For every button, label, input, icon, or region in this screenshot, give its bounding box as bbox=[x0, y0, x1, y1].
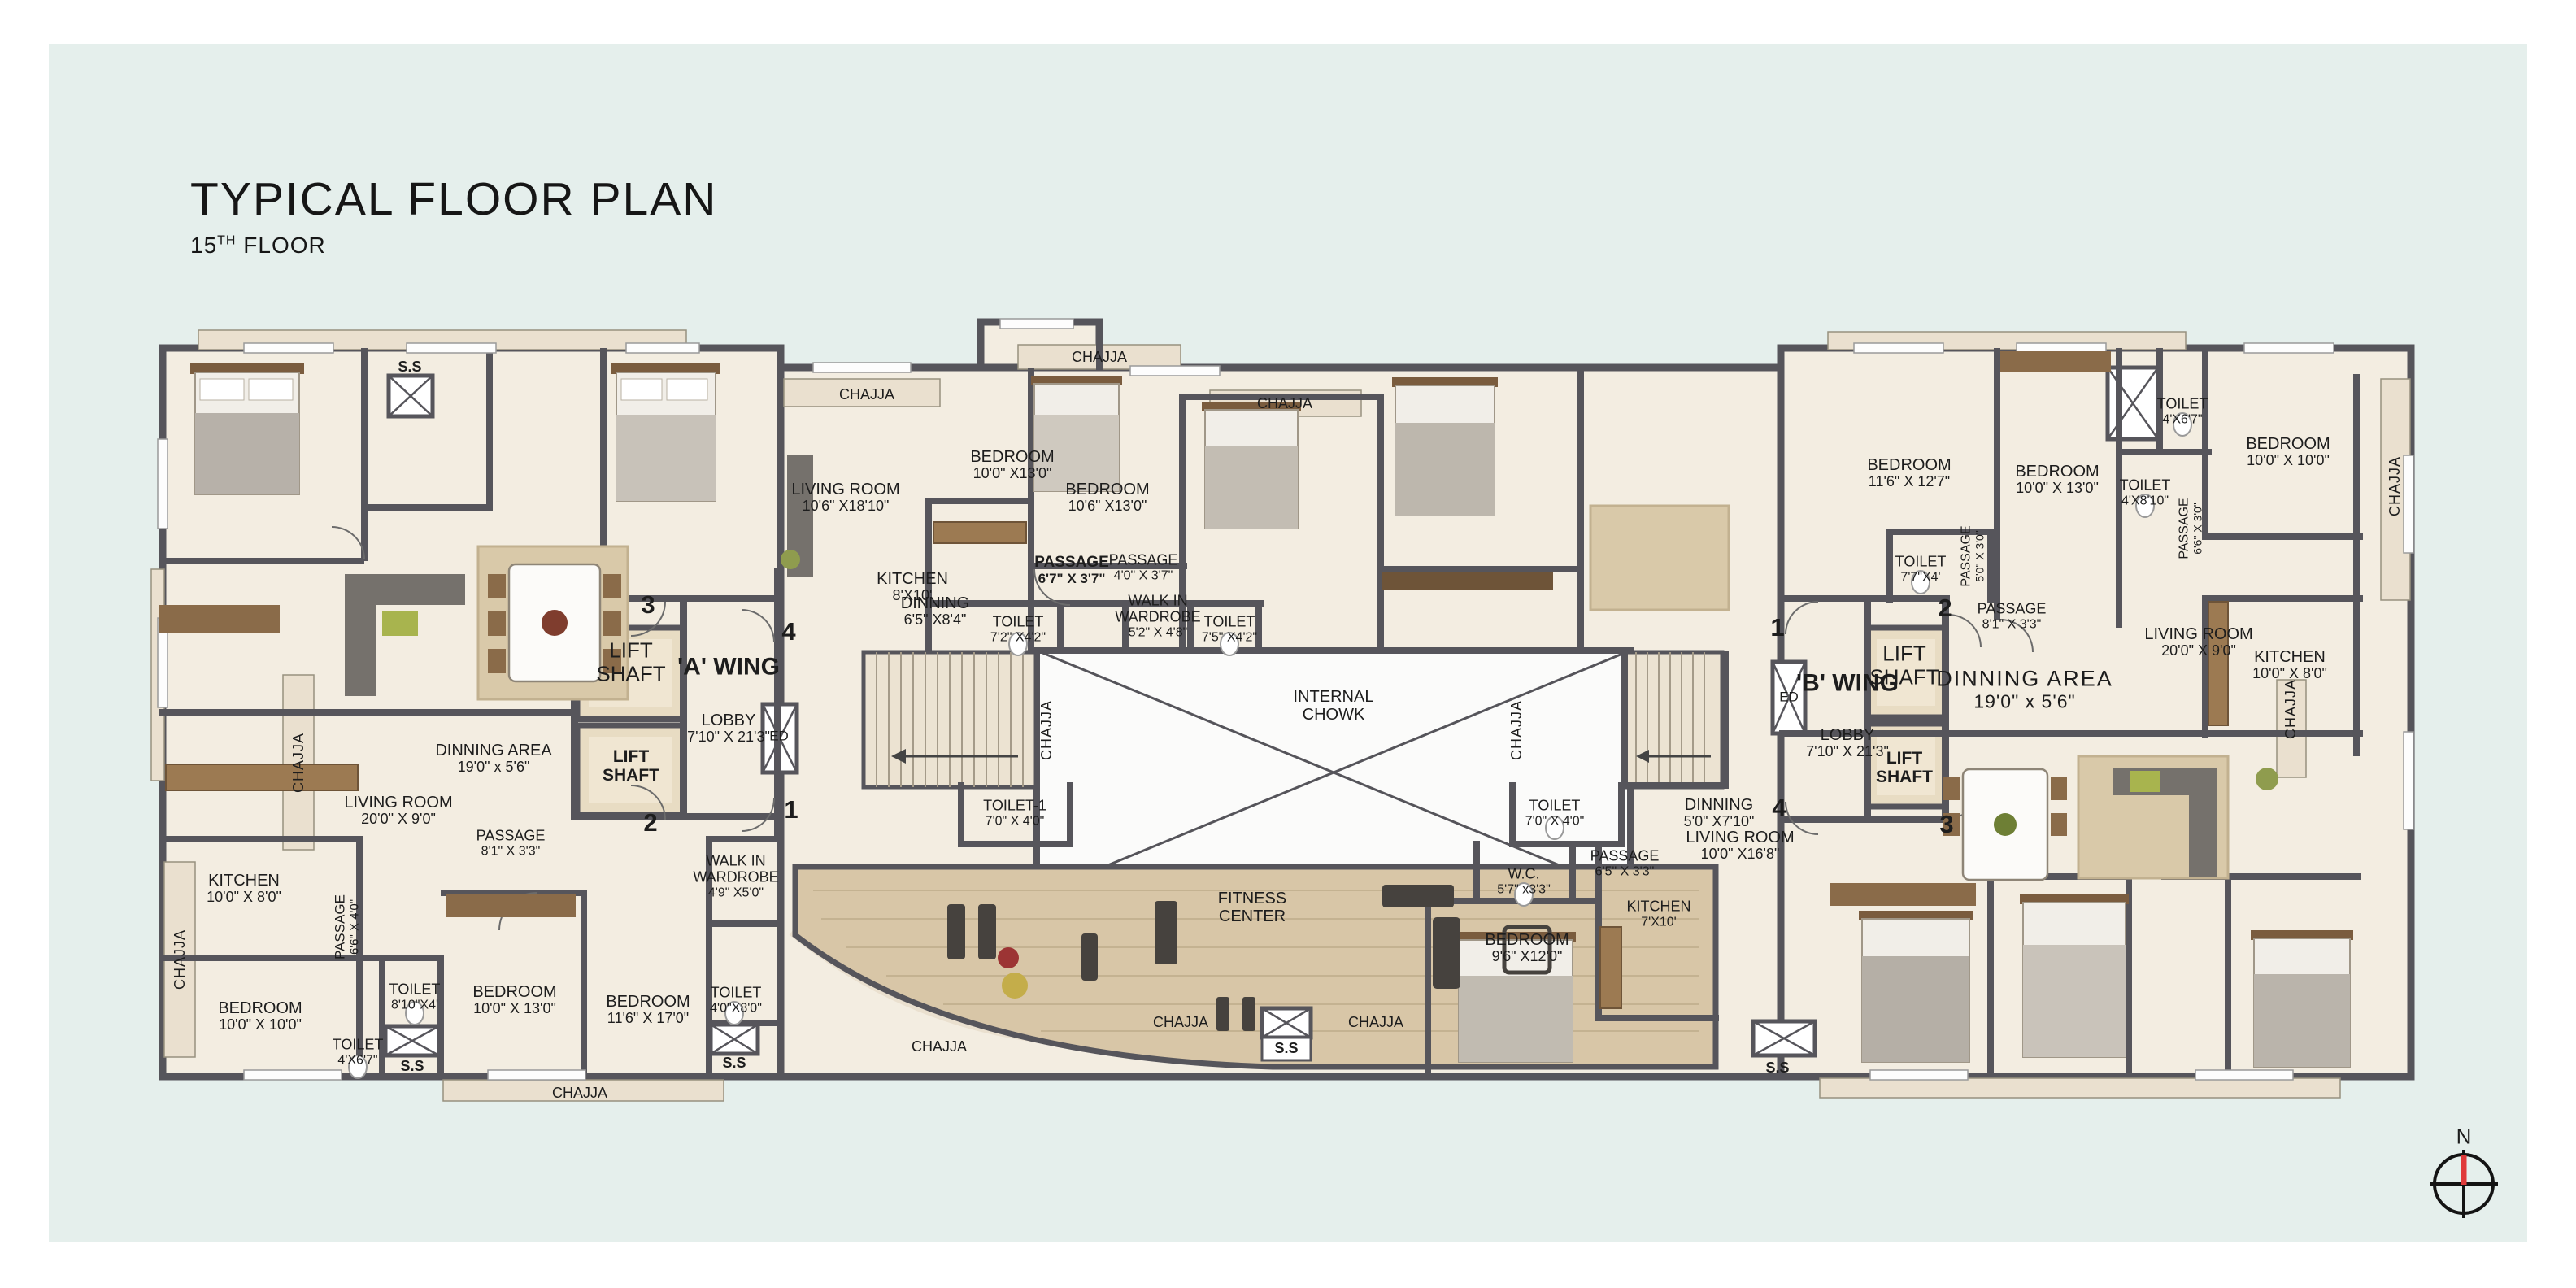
label-text: LIVING ROOM bbox=[791, 481, 899, 498]
label-text: TOILET bbox=[1202, 614, 1257, 630]
label-text: PASSAGE bbox=[2178, 498, 2192, 559]
plan-label-n: N bbox=[2456, 1125, 2472, 1149]
label-dims: 5'2" X 4'8" bbox=[1108, 625, 1207, 640]
label-text: CHAJJA bbox=[1509, 700, 1525, 760]
label-text: LIFT SHAFT bbox=[1872, 749, 1937, 786]
plan-label-chajja: CHAJJA bbox=[552, 1086, 607, 1102]
plan-label-s-s: S.S bbox=[398, 359, 421, 376]
plan-label-chajja: CHAJJA bbox=[1348, 1015, 1403, 1031]
plan-label-dinning: DINNING5'0" X7'10" bbox=[1684, 796, 1755, 830]
plan-label-toilet: TOILET7'7"X4' bbox=[1895, 554, 1947, 584]
label-dims: 6'6" X 4'0" bbox=[348, 894, 362, 959]
label-text: ED bbox=[769, 729, 789, 745]
label-text: 1 bbox=[784, 796, 798, 824]
label-text: WALK IN WARDROBE bbox=[682, 853, 790, 885]
label-text: TOILET-1 bbox=[983, 798, 1046, 814]
label-text: CHAJJA bbox=[2283, 679, 2300, 739]
plan-label-kitchen: KITCHEN10'0" X 8'0" bbox=[207, 872, 281, 906]
plan-label-chajja: CHAJJA bbox=[172, 929, 189, 990]
label-dims: 10'0" X 10'0" bbox=[218, 1017, 302, 1033]
label-text: CHAJJA bbox=[291, 733, 307, 793]
label-text: BEDROOM bbox=[472, 983, 556, 1001]
label-dims: 4'X6'7" bbox=[2157, 412, 2208, 427]
plan-label-ed: ED bbox=[769, 729, 789, 745]
label-dims: 4'0"X8'0" bbox=[710, 1001, 762, 1016]
plan-label-toilet-1: TOILET-17'0" X 4'0" bbox=[983, 798, 1046, 828]
label-text: TOILET bbox=[389, 981, 441, 998]
plan-label-living-room: LIVING ROOM20'0" X 9'0" bbox=[344, 794, 452, 828]
plan-label-internal-chowk: INTERNAL CHOWK bbox=[1273, 688, 1395, 724]
label-text: N bbox=[2456, 1125, 2472, 1149]
plan-label-4: 4 bbox=[781, 618, 795, 646]
label-dims: 10'0" X 13'0" bbox=[472, 1001, 556, 1017]
label-text: BEDROOM bbox=[218, 999, 302, 1017]
label-text: CHAJJA bbox=[1072, 350, 1127, 366]
plan-label-passage: PASSAGE6'5" X 3'3" bbox=[1590, 848, 1660, 878]
plan-label-toilet: TOILET7'0" X 4'0" bbox=[1525, 798, 1585, 828]
label-text: LIFT SHAFT bbox=[598, 747, 664, 785]
plan-label-toilet: TOILET8'10"X4' bbox=[389, 981, 441, 1012]
label-text: 3 bbox=[1939, 811, 1953, 838]
plan-label-living-room: LIVING ROOM20'0" X 9'0" bbox=[2144, 625, 2252, 659]
label-text: W.C. bbox=[1497, 866, 1551, 882]
label-text: LOBBY bbox=[1806, 726, 1889, 744]
plan-label-chajja: CHAJJA bbox=[1509, 700, 1525, 760]
plan-label-bedroom: BEDROOM10'0" X 10'0" bbox=[218, 999, 302, 1033]
plan-label-chajja: CHAJJA bbox=[839, 387, 894, 403]
label-text: CHAJJA bbox=[172, 929, 189, 990]
plan-label-chajja: CHAJJA bbox=[1257, 396, 1312, 412]
label-dims: 20'0" X 9'0" bbox=[344, 812, 452, 828]
plan-label-chajja: CHAJJA bbox=[1039, 700, 1055, 760]
plan-label-w-c: W.C.5'7" x3'3" bbox=[1497, 866, 1551, 896]
label-text: CHAJJA bbox=[552, 1086, 607, 1102]
plan-label-lift-shaft: LIFT SHAFT bbox=[598, 747, 664, 785]
label-text: DINNING AREA bbox=[1936, 668, 2113, 692]
label-dims: 11'6" X 12'7" bbox=[1867, 474, 1951, 490]
plan-label-passage: PASSAGE5'0" X 3'0" bbox=[1960, 525, 1986, 586]
label-dims: 11'6" X 17'0" bbox=[606, 1011, 690, 1027]
label-text: LIVING ROOM bbox=[2144, 625, 2252, 643]
plan-label-chajja: CHAJJA bbox=[1072, 350, 1127, 366]
plan-label-2: 2 bbox=[643, 809, 657, 837]
label-text: 3 bbox=[641, 591, 655, 619]
label-text: BEDROOM bbox=[606, 993, 690, 1011]
label-text: LIFT SHAFT bbox=[594, 638, 668, 685]
label-text: LOBBY bbox=[687, 711, 770, 729]
label-dims: 10'0" X16'8" bbox=[1686, 846, 1794, 863]
label-text: LIVING ROOM bbox=[1686, 829, 1794, 846]
label-text: PASSAGE bbox=[333, 894, 348, 959]
label-dims: 8'1" X 3'3" bbox=[476, 844, 546, 859]
label-dims: 6'5" X 3'3" bbox=[1590, 864, 1660, 879]
label-dims: 5'0" X7'10" bbox=[1684, 814, 1755, 830]
label-text: CHAJJA bbox=[1348, 1015, 1403, 1031]
plan-label-bedroom: BEDROOM10'6" X13'0" bbox=[1065, 481, 1149, 515]
label-text: S.S bbox=[722, 1055, 746, 1072]
plan-label-walk-in-wardrobe: WALK IN WARDROBE5'2" X 4'8" bbox=[1108, 593, 1207, 639]
label-text: S.S bbox=[398, 359, 421, 376]
label-dims: 19'0" x 5'6" bbox=[435, 759, 551, 776]
label-text: DINNING AREA bbox=[435, 742, 551, 759]
plan-label-bedroom: BEDROOM11'6" X 17'0" bbox=[606, 993, 690, 1027]
plan-label-s-s: S.S bbox=[1765, 1060, 1789, 1077]
plan-label-toilet: TOILET7'2" X4'2" bbox=[990, 614, 1046, 644]
label-text: S.S bbox=[1274, 1041, 1298, 1057]
label-text: WALK IN WARDROBE bbox=[1108, 593, 1207, 625]
label-text: BEDROOM bbox=[2015, 463, 2099, 481]
label-text: PASSAGE bbox=[1109, 552, 1178, 568]
plan-label-lift-shaft: LIFT SHAFT bbox=[594, 638, 668, 685]
plan-label-bedroom: BEDROOM10'0" X 13'0" bbox=[472, 983, 556, 1017]
label-text: PASSAGE bbox=[1590, 848, 1660, 864]
label-dims: 10'0" X 8'0" bbox=[207, 890, 281, 906]
label-text: 4 bbox=[1772, 794, 1786, 822]
label-text: INTERNAL CHOWK bbox=[1273, 688, 1395, 724]
label-text: CHAJJA bbox=[1153, 1015, 1208, 1031]
label-text: LIVING ROOM bbox=[344, 794, 452, 812]
label-text: BEDROOM bbox=[1867, 456, 1951, 474]
label-text: 2 bbox=[1938, 594, 1952, 622]
label-text: LIFT SHAFT bbox=[1867, 642, 1942, 688]
plan-label-dinning-area: DINNING AREA19'0" x 5'6" bbox=[1936, 668, 2113, 712]
label-dims: 5'0" X 3'0" bbox=[1973, 525, 1986, 586]
plan-label-chajja: CHAJJA bbox=[291, 733, 307, 793]
plan-label-lift-shaft: LIFT SHAFT bbox=[1872, 749, 1937, 786]
label-text: BEDROOM bbox=[2246, 435, 2330, 453]
floor-plan-page: TYPICAL FLOOR PLAN 15TH FLOOR S.SLIFT SH… bbox=[0, 0, 2576, 1288]
label-dims: 7'7"X4' bbox=[1895, 570, 1947, 585]
label-text: BEDROOM bbox=[1065, 481, 1149, 498]
label-text: TOILET bbox=[1895, 554, 1947, 570]
plan-label-fitness-center: FITNESS CENTER bbox=[1203, 890, 1301, 925]
plan-label-s-s: S.S bbox=[722, 1055, 746, 1072]
label-dims: 9'6" X12'0" bbox=[1485, 949, 1569, 965]
label-dims: 7'X10' bbox=[1626, 915, 1690, 929]
label-dims: 7'5" X4'2" bbox=[1202, 630, 1257, 645]
label-dims: 7'0" X 4'0" bbox=[1525, 814, 1585, 829]
plan-label-toilet: TOILET4'0"X8'0" bbox=[710, 985, 762, 1015]
label-dims: 4'0" X 3'7" bbox=[1109, 568, 1178, 583]
plan-label-2: 2 bbox=[1938, 594, 1952, 622]
label-dims: 6'6" X 3'0" bbox=[2191, 498, 2204, 559]
label-dims: 8'1" X 3'3" bbox=[1978, 617, 2047, 632]
plan-label-3: 3 bbox=[1939, 811, 1953, 838]
plan-label-toilet: TOILET4'X8'10" bbox=[2120, 477, 2171, 507]
label-text: CHAJJA bbox=[1039, 700, 1055, 760]
label-text: CHAJJA bbox=[2387, 456, 2404, 516]
plan-label-chajja: CHAJJA bbox=[912, 1039, 967, 1055]
plan-label-living-room: LIVING ROOM10'6" X18'10" bbox=[791, 481, 899, 515]
label-text: 2 bbox=[643, 809, 657, 837]
label-dims: 20'0" X 9'0" bbox=[2144, 643, 2252, 659]
label-text: 1 bbox=[1770, 614, 1784, 642]
label-text: TOILET bbox=[710, 985, 762, 1001]
label-dims: 4'X8'10" bbox=[2120, 494, 2171, 508]
label-dims: 7'10" X 21'3" bbox=[687, 729, 770, 746]
plan-label-toilet: TOILET4'X6'7" bbox=[2157, 396, 2208, 426]
plan-label-kitchen: KITCHEN7'X10' bbox=[1626, 899, 1690, 929]
plan-label-passage: PASSAGE8'1" X 3'3" bbox=[476, 828, 546, 858]
label-text: KITCHEN bbox=[877, 570, 948, 588]
label-text: BEDROOM bbox=[970, 448, 1054, 466]
label-text: PASSAGE bbox=[476, 828, 546, 844]
label-dims: 5'7" x3'3" bbox=[1497, 882, 1551, 897]
label-text: PASSAGE bbox=[1960, 525, 1974, 586]
label-text: CHAJJA bbox=[1257, 396, 1312, 412]
plan-label-dinning-area: DINNING AREA19'0" x 5'6" bbox=[435, 742, 551, 776]
plan-label-chajja: CHAJJA bbox=[2283, 679, 2300, 739]
label-dims: 4'9" X5'0" bbox=[682, 885, 790, 900]
plan-label-4: 4 bbox=[1772, 794, 1786, 822]
plan-label-chajja: CHAJJA bbox=[1153, 1015, 1208, 1031]
label-text: S.S bbox=[1765, 1060, 1789, 1077]
plan-label-toilet: TOILET7'5" X4'2" bbox=[1202, 614, 1257, 644]
plan-label-passage: PASSAGE6'7" X 3'7" bbox=[1034, 555, 1109, 587]
plan-label-passage: PASSAGE4'0" X 3'7" bbox=[1109, 552, 1178, 582]
label-text: TOILET bbox=[2120, 477, 2171, 494]
label-text: DINNING bbox=[901, 594, 969, 612]
label-text: 4 bbox=[781, 618, 795, 646]
plan-label-bedroom: BEDROOM10'0" X 10'0" bbox=[2246, 435, 2330, 469]
plan-label-kitchen: KITCHEN10'0" X 8'0" bbox=[2252, 648, 2327, 682]
plan-label-s-s: S.S bbox=[400, 1059, 424, 1075]
label-dims: 10'0" X13'0" bbox=[970, 466, 1054, 482]
plan-label-toilet: TOILET4'X6'7" bbox=[333, 1037, 384, 1067]
label-text: DINNING bbox=[1684, 796, 1755, 814]
label-dims: 7'0" X 4'0" bbox=[983, 814, 1046, 829]
label-text: 'A' WING bbox=[677, 654, 780, 681]
plan-label-3: 3 bbox=[641, 591, 655, 619]
label-dims: 10'6" X18'10" bbox=[791, 498, 899, 515]
label-text: TOILET bbox=[1525, 798, 1585, 814]
label-text: PASSAGE bbox=[1034, 555, 1109, 572]
label-dims: 6'5" X8'4" bbox=[901, 612, 969, 629]
plan-label-bedroom: BEDROOM10'0" X 13'0" bbox=[2015, 463, 2099, 497]
label-dims: 4'X6'7" bbox=[333, 1053, 384, 1068]
label-text: S.S bbox=[400, 1059, 424, 1075]
label-dims: 10'0" X 10'0" bbox=[2246, 453, 2330, 469]
plan-label-walk-in-wardrobe: WALK IN WARDROBE4'9" X5'0" bbox=[682, 853, 790, 899]
plan-label-bedroom: BEDROOM10'0" X13'0" bbox=[970, 448, 1054, 482]
plan-label-living-room: LIVING ROOM10'0" X16'8" bbox=[1686, 829, 1794, 863]
label-layer: S.SLIFT SHAFTLIFT SHAFT'A' WINGLOBBY7'10… bbox=[0, 0, 2576, 1288]
plan-label-passage: PASSAGE6'6" X 3'0" bbox=[2178, 498, 2204, 559]
plan-label-chajja: CHAJJA bbox=[2387, 456, 2404, 516]
label-dims: 8'10"X4' bbox=[389, 998, 441, 1012]
plan-label-bedroom: BEDROOM9'6" X12'0" bbox=[1485, 931, 1569, 965]
label-text: BEDROOM bbox=[1485, 931, 1569, 949]
label-text: TOILET bbox=[990, 614, 1046, 630]
plan-label-passage: PASSAGE8'1" X 3'3" bbox=[1978, 601, 2047, 631]
label-text: KITCHEN bbox=[207, 872, 281, 890]
plan-label-dinning: DINNING6'5" X8'4" bbox=[901, 594, 969, 629]
label-text: FITNESS CENTER bbox=[1203, 890, 1301, 925]
label-text: TOILET bbox=[333, 1037, 384, 1053]
plan-label-lift-shaft: LIFT SHAFT bbox=[1867, 642, 1942, 688]
plan-label-1: 1 bbox=[1770, 614, 1784, 642]
label-text: KITCHEN bbox=[2252, 648, 2327, 666]
plan-label-1: 1 bbox=[784, 796, 798, 824]
label-dims: 7'2" X4'2" bbox=[990, 630, 1046, 645]
plan-label-lobby: LOBBY7'10" X 21'3" bbox=[687, 711, 770, 746]
label-text: TOILET bbox=[2157, 396, 2208, 412]
plan-label-a-wing: 'A' WING bbox=[677, 654, 780, 681]
plan-label-passage: PASSAGE6'6" X 4'0" bbox=[333, 894, 361, 959]
label-dims: 19'0" x 5'6" bbox=[1936, 691, 2113, 711]
label-dims: 10'0" X 13'0" bbox=[2015, 481, 2099, 497]
plan-label-bedroom: BEDROOM11'6" X 12'7" bbox=[1867, 456, 1951, 490]
label-text: PASSAGE bbox=[1978, 601, 2047, 617]
label-dims: 6'7" X 3'7" bbox=[1034, 572, 1109, 587]
label-dims: 10'6" X13'0" bbox=[1065, 498, 1149, 515]
label-text: CHAJJA bbox=[839, 387, 894, 403]
label-text: KITCHEN bbox=[1626, 899, 1690, 915]
plan-label-s-s: S.S bbox=[1274, 1041, 1298, 1057]
label-text: CHAJJA bbox=[912, 1039, 967, 1055]
